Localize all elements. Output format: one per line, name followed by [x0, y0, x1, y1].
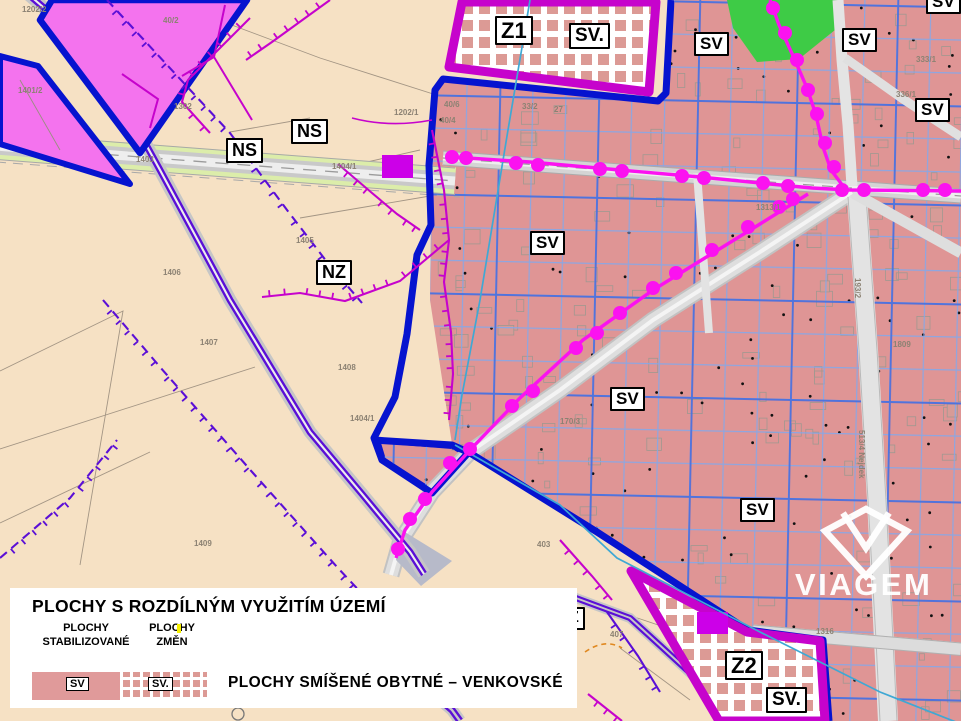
legend-title: PLOCHY S ROZDÍLNÝM VYUŽITÍM ÚZEMÍ: [32, 596, 386, 617]
parcel-number: 1406: [163, 268, 181, 277]
zone-label: SV: [740, 498, 775, 522]
zone-label: NZ: [316, 260, 352, 285]
parcel-number: 170/3: [560, 417, 580, 426]
parcel-number: 1403: [136, 155, 154, 164]
legend-panel: PLOCHY S ROZDÍLNÝM VYUŽITÍM ÚZEMÍ PLOCHY…: [10, 588, 577, 708]
parcel-number: 193/2: [853, 278, 862, 298]
zone-label: NS: [226, 138, 263, 163]
parcel-number: 27: [554, 105, 563, 114]
legend-column-stabilized: PLOCHYSTABILIZOVANÉ: [34, 622, 138, 650]
zone-label: SV.: [569, 23, 610, 49]
parcel-number: 1302: [174, 102, 192, 111]
parcel-number: 1408: [338, 363, 356, 372]
parcel-number: 1407: [200, 338, 218, 347]
zone-label: SV: [926, 0, 961, 14]
legend-swatch-code: SV.: [148, 677, 173, 691]
parcel-number: 40/6: [444, 100, 460, 109]
legend-swatch-change: SV.: [120, 672, 207, 700]
parcel-number: 1404/1: [332, 162, 356, 171]
zone-label: Z2: [725, 651, 763, 680]
legend-swatch-stabilized: SV: [32, 672, 120, 700]
yellow-mark: [177, 624, 181, 633]
parcel-number: 513/4 Nejdek: [857, 430, 866, 478]
parcel-number: 1404/1: [350, 414, 374, 423]
parcel-number: 1809: [893, 340, 911, 349]
parcel-number: 1202/2: [22, 5, 46, 14]
parcel-number: 407: [610, 630, 623, 639]
parcel-number: 403: [537, 540, 550, 549]
zone-label: SV: [915, 98, 950, 122]
zone-label: SV.: [766, 687, 807, 713]
zone-label: SV: [530, 231, 565, 255]
parcel-number: 1202/1: [394, 108, 418, 117]
parcel-number: 40/4: [440, 116, 456, 125]
parcel-number: 33/2: [522, 102, 538, 111]
legend-swatch-code: SV: [66, 677, 89, 691]
parcel-number: 333/1: [916, 55, 936, 64]
parcel-number: 1405: [296, 236, 314, 245]
zone-label: Z1: [495, 16, 533, 45]
zone-label: SV: [842, 28, 877, 52]
parcel-number: 1316: [816, 627, 834, 636]
legend-column-changes: PLOCHYZMĚN: [138, 622, 206, 650]
zone-label: SV: [610, 387, 645, 411]
zone-label: SV: [694, 32, 729, 56]
zoning-map-viewport[interactable]: Z1SV.SVSVSVSVNSNSNZSVSVSVZ2SV.Z1202/240/…: [0, 0, 961, 721]
zone-label: NS: [291, 119, 328, 144]
legend-description: PLOCHY SMÍŠENÉ OBYTNÉ – VENKOVSKÉ: [228, 674, 563, 692]
parcel-number: 336/1: [896, 90, 916, 99]
parcel-number: 1313/1: [756, 203, 780, 212]
parcel-number: 1409: [194, 539, 212, 548]
parcel-number: 1401/2: [18, 86, 42, 95]
parcel-number: 40/2: [163, 16, 179, 25]
